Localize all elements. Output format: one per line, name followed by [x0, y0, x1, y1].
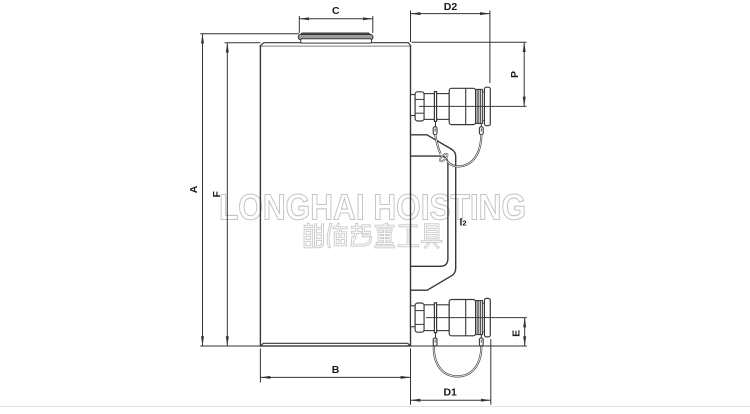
svg-text:F: F	[211, 191, 223, 198]
svg-text:E: E	[510, 330, 522, 337]
svg-text:D2: D2	[444, 1, 458, 13]
svg-text:LONGHAI HOISTING: LONGHAI HOISTING	[219, 187, 526, 228]
svg-text:C: C	[332, 5, 340, 17]
svg-text:A: A	[188, 185, 200, 193]
svg-text:P: P	[509, 71, 521, 78]
svg-text:D1: D1	[443, 386, 457, 398]
svg-text:l2: l2	[460, 217, 467, 229]
svg-text:B: B	[332, 364, 340, 376]
